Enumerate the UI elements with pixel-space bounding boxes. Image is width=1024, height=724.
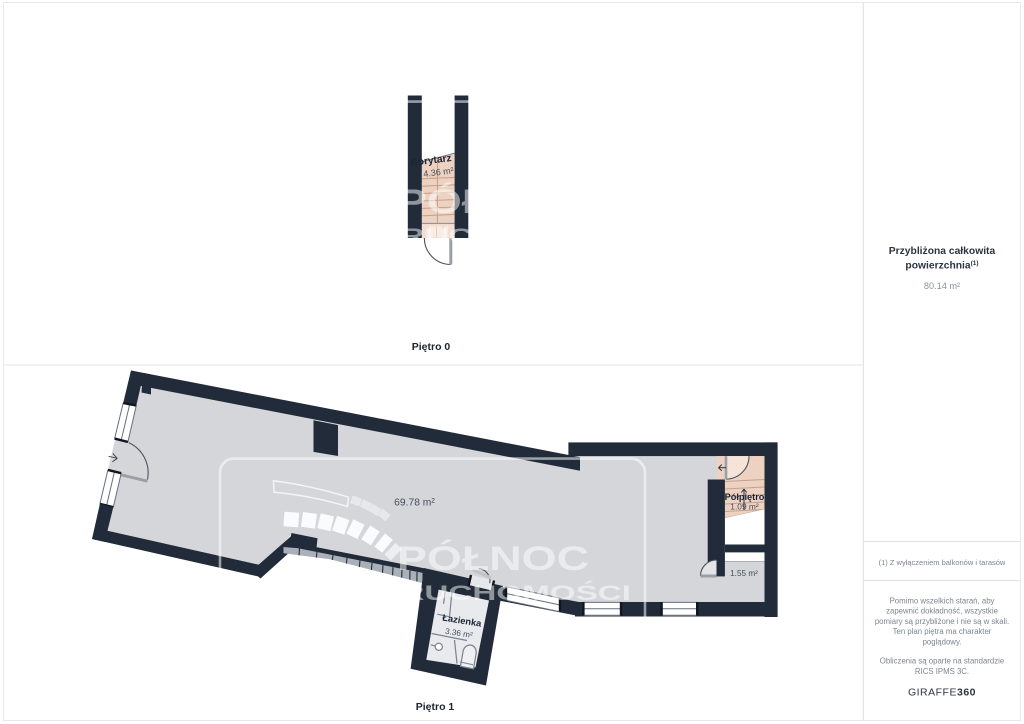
svg-text:69.78 m²: 69.78 m² bbox=[394, 497, 435, 508]
svg-text:Piętro 0: Piętro 0 bbox=[412, 341, 451, 353]
svg-text:zapewnić dokładność, wszystkie: zapewnić dokładność, wszystkie bbox=[886, 607, 998, 616]
svg-text:PÓŁNOC: PÓŁNOC bbox=[397, 538, 589, 578]
svg-text:1.55 m²: 1.55 m² bbox=[730, 569, 758, 578]
svg-text:RICS IPMS 3C.: RICS IPMS 3C. bbox=[915, 667, 969, 676]
svg-text:pomiary są przybliżone i nie s: pomiary są przybliżone i nie są w skali. bbox=[875, 617, 1009, 626]
svg-text:poglądowy.: poglądowy. bbox=[923, 638, 962, 647]
svg-text:Przybliżona całkowita: Przybliżona całkowita bbox=[889, 246, 996, 257]
svg-text:Pomimo wszelkich starań, aby: Pomimo wszelkich starań, aby bbox=[890, 597, 995, 606]
svg-text:Piętro 1: Piętro 1 bbox=[416, 701, 455, 713]
svg-text:80.14 m²: 80.14 m² bbox=[924, 281, 960, 291]
svg-text:Ten plan piętra ma charakter: Ten plan piętra ma charakter bbox=[893, 627, 992, 636]
svg-text:GIRAFFE360: GIRAFFE360 bbox=[908, 687, 976, 699]
svg-text:PÓŁNOC: PÓŁNOC bbox=[397, 181, 589, 221]
svg-text:Obliczenia są oparte na standa: Obliczenia są oparte na standardzie bbox=[880, 657, 1004, 666]
svg-text:NIERUCHOMOŚCI: NIERUCHOMOŚCI bbox=[345, 223, 631, 248]
svg-text:1.09 m²: 1.09 m² bbox=[730, 502, 759, 512]
svg-text:(1) Z wyłączeniem balkonów i t: (1) Z wyłączeniem balkonów i tarasów bbox=[879, 558, 1006, 567]
svg-text:powierzchnia(1): powierzchnia(1) bbox=[905, 260, 978, 272]
svg-text:NIERUCHOMOŚCI: NIERUCHOMOŚCI bbox=[345, 580, 631, 605]
